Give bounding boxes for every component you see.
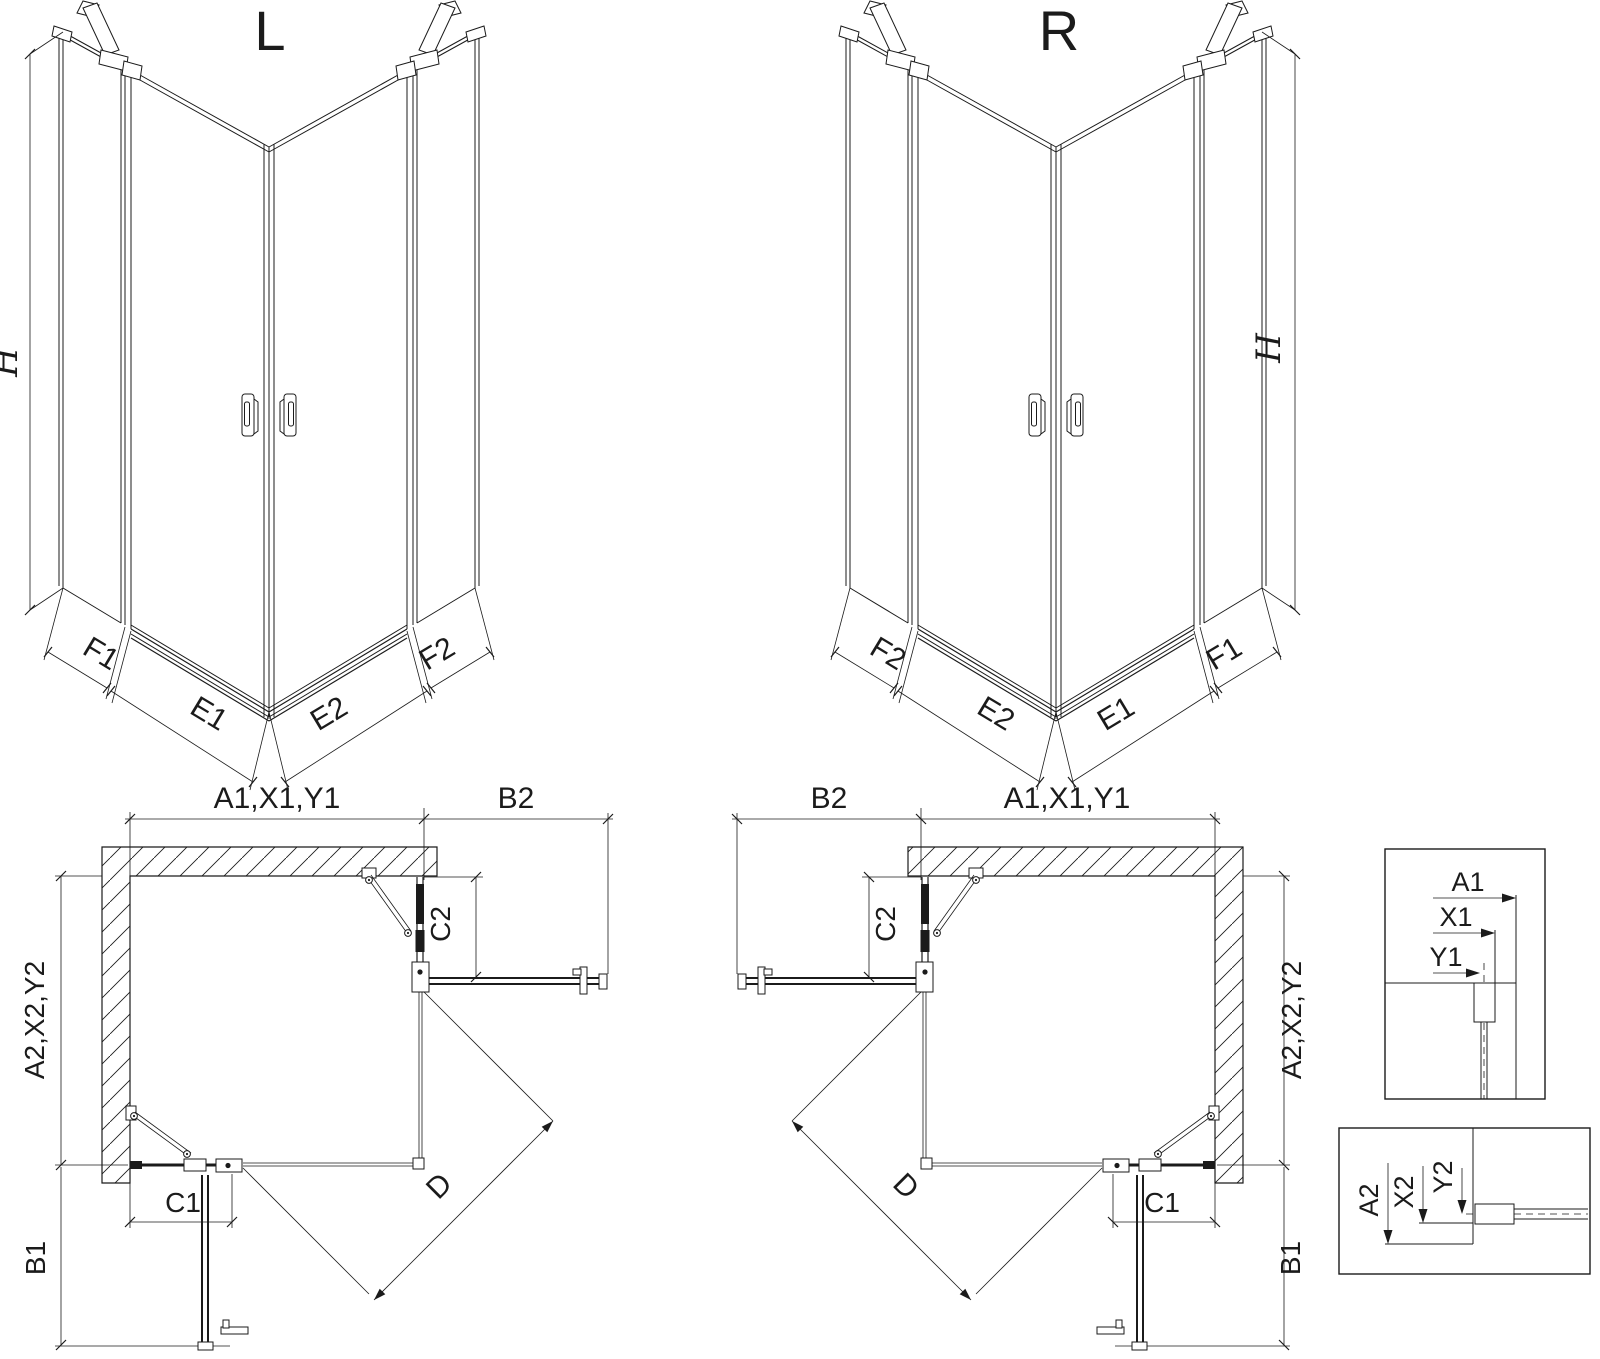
technical-drawing-page: L H F1 E1 E2 F2 R H F2 E2 E1 F1 A1,X1,Y1… xyxy=(0,0,1600,1359)
iso-left-f2-label: F2 xyxy=(414,631,461,677)
plan-right-c1-label: C1 xyxy=(1144,1187,1180,1218)
plan-right-height-side-label: A2,X2,Y2 xyxy=(1276,961,1307,1079)
plan-right-c2-label: C2 xyxy=(870,906,901,942)
plan-right-view: A1,X1,Y1 B2 C2 A2,X2,Y2 B1 C1 D xyxy=(732,782,1307,1350)
plan-left-b1-label: B1 xyxy=(20,1241,51,1275)
detail-x1-label: X1 xyxy=(1439,902,1472,932)
detail-height-box: A2 X2 Y2 xyxy=(1339,1128,1590,1274)
iso-right-e2-label: E2 xyxy=(972,690,1020,737)
plan-left-c2-label: C2 xyxy=(425,906,456,942)
plan-left-b2-label: B2 xyxy=(498,782,535,815)
plan-left-diagonal-label: D xyxy=(420,1167,459,1206)
plan-left-height-side-label: A2,X2,Y2 xyxy=(19,961,50,1079)
iso-right-f2-label: F2 xyxy=(864,631,911,677)
detail-a1-label: A1 xyxy=(1451,867,1484,897)
plan-left-width-top-label: A1,X1,Y1 xyxy=(214,782,341,815)
plan-right-b2-label: B2 xyxy=(811,782,848,815)
iso-left-view: L H F1 E1 E2 F2 xyxy=(0,0,494,790)
detail-a2-label: A2 xyxy=(1354,1183,1384,1216)
iso-right-e1-label: E1 xyxy=(1092,690,1140,737)
iso-right-height-label: H xyxy=(1249,332,1289,364)
plan-left-c1-label: C1 xyxy=(165,1187,201,1218)
shower-enclosure-diagram: L H F1 E1 E2 F2 R H F2 E2 E1 F1 A1,X1,Y1… xyxy=(0,0,1600,1359)
iso-right-f1-label: F1 xyxy=(1201,631,1248,677)
detail-y1-label: Y1 xyxy=(1429,942,1462,972)
detail-width-box: A1 X1 Y1 xyxy=(1385,849,1545,1099)
plan-left-view: A1,X1,Y1 B2 C2 A2,X2,Y2 B1 C1 D xyxy=(19,782,613,1350)
iso-left-title: L xyxy=(254,0,285,62)
iso-left-e2-label: E2 xyxy=(305,690,353,737)
iso-left-e1-label: E1 xyxy=(185,690,233,737)
plan-right-b1-label: B1 xyxy=(1275,1241,1306,1275)
iso-left-height-label: H xyxy=(0,346,26,378)
iso-left-f1-label: F1 xyxy=(77,631,124,677)
iso-right-view: R H F2 E2 E1 F1 xyxy=(831,0,1300,790)
plan-right-diagonal-label: D xyxy=(886,1167,925,1206)
iso-right-title: R xyxy=(1039,0,1079,62)
detail-y2-label: Y2 xyxy=(1428,1160,1458,1193)
plan-right-width-top-label: A1,X1,Y1 xyxy=(1004,782,1131,815)
detail-x2-label: X2 xyxy=(1389,1175,1419,1208)
